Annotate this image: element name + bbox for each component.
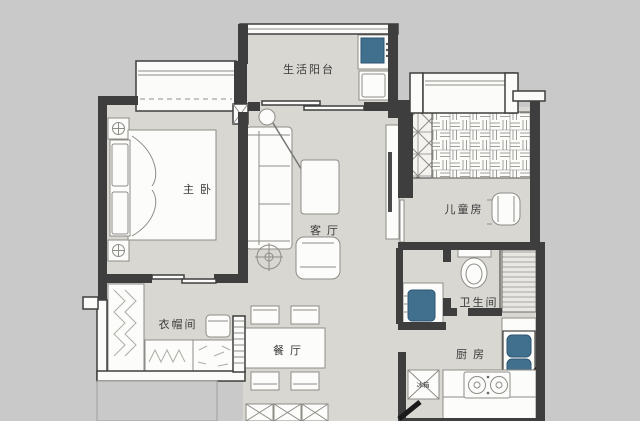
- label-fridge: 冰箱: [417, 380, 431, 389]
- wall-bath-bottom-stub: [443, 308, 457, 316]
- sofa: [246, 127, 292, 249]
- balcony-window: [240, 24, 398, 34]
- dining-chair: [251, 306, 279, 324]
- label-kids-room: 儿童房: [445, 202, 484, 216]
- pillow: [112, 144, 128, 186]
- wall-corridor: [396, 248, 403, 324]
- dining-chair: [291, 306, 319, 324]
- wall-step: [83, 297, 98, 309]
- bay-window-master: [126, 61, 247, 112]
- wall-kitchen-left: [398, 352, 406, 421]
- label-master-bedroom: 主卧: [183, 183, 217, 196]
- wall-bath-left-stub: [443, 250, 451, 262]
- sliding-door-leaf: [152, 275, 184, 279]
- masonry-column: [233, 316, 245, 372]
- wall-bottom-left: [97, 371, 245, 381]
- label-bathroom: 卫生间: [460, 295, 499, 309]
- wall-balcony-left: [238, 24, 248, 64]
- floor-plan-image: 主卧 生活阳台 客厅 儿童房 衣帽间 餐厅 卫生间 厨房 冰箱: [0, 0, 640, 421]
- wardrobe: [108, 284, 144, 372]
- wall-left-upper: [98, 96, 107, 302]
- wall-stub: [364, 102, 398, 111]
- tv-cabinet: [386, 125, 399, 239]
- coffee-table: [301, 160, 339, 214]
- tatami-bed: [432, 112, 532, 178]
- pendant-lamp-icon: [259, 109, 275, 125]
- washer-knob: [386, 49, 388, 51]
- sink-bowl: [507, 335, 531, 357]
- dining-chair: [291, 372, 319, 390]
- dining-chair: [251, 372, 279, 390]
- wall-kitchen-right: [536, 318, 545, 421]
- pillow: [112, 192, 128, 234]
- tv-screen: [388, 152, 392, 212]
- vanity-sink: [408, 290, 435, 321]
- stove: [464, 372, 510, 398]
- duct-column: [410, 112, 432, 178]
- shower-area: [502, 250, 536, 312]
- washer-knob: [386, 43, 388, 45]
- label-cloakroom: 衣帽间: [159, 317, 198, 331]
- exterior-block: [97, 381, 217, 421]
- stove-knob: [487, 376, 490, 379]
- wall-right-bath: [536, 248, 545, 318]
- sliding-door-leaf: [182, 279, 216, 283]
- washer-knob: [386, 55, 388, 57]
- balcony: [358, 35, 390, 100]
- wall-bedroom-living: [238, 112, 248, 282]
- stove-knob: [487, 392, 490, 395]
- wall-bedroom-bottom-right: [214, 274, 248, 283]
- wall-kids-bathroom: [398, 242, 545, 250]
- wall-stub: [248, 102, 260, 111]
- balcony-sliding-door: [304, 106, 364, 110]
- wall-vanity-kitchen: [398, 322, 446, 330]
- label-living-room: 客厅: [310, 223, 344, 237]
- label-balcony: 生活阳台: [283, 62, 335, 76]
- kids-door-leaf: [400, 200, 404, 242]
- washing-machine-door: [361, 38, 384, 63]
- label-dining-room: 餐厅: [273, 343, 307, 357]
- desk-chair: [492, 193, 520, 225]
- label-kitchen: 厨房: [456, 348, 490, 361]
- balcony-sliding-door: [262, 101, 320, 105]
- wall-bedroom-bottom-left: [106, 274, 152, 283]
- sideboard-cabinets: [246, 404, 328, 421]
- plant-icon: [113, 245, 125, 257]
- plant-icon: [113, 123, 125, 135]
- wall-bath-bottom: [468, 308, 502, 316]
- wall-left-lower: [97, 300, 107, 381]
- floor-plan-svg: 主卧 生活阳台 客厅 儿童房 衣帽间 餐厅 卫生间 厨房 冰箱: [0, 0, 640, 421]
- wall-kids-right: [530, 101, 540, 248]
- stool: [206, 315, 230, 337]
- wall-living-kids: [398, 100, 413, 198]
